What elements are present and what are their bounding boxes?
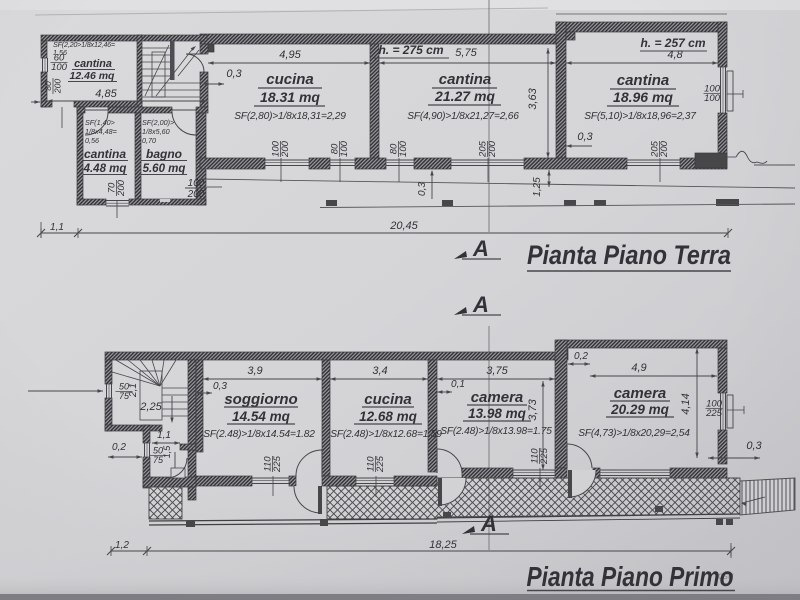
svg-text:0,3: 0,3 <box>226 68 242 80</box>
svg-text:A: A <box>472 292 489 317</box>
svg-text:14.54 mq: 14.54 mq <box>232 409 291 424</box>
svg-text:1,5: 1,5 <box>162 445 172 459</box>
svg-text:cantina: cantina <box>74 58 112 70</box>
svg-text:cantina: cantina <box>439 71 492 88</box>
svg-text:3,75: 3,75 <box>486 365 508 377</box>
svg-text:SF(2.48)>1/8x14.54=1.82: SF(2.48)>1/8x14.54=1.82 <box>203 429 315 440</box>
svg-text:20,45: 20,45 <box>389 220 418 232</box>
svg-text:1,25: 1,25 <box>532 177 543 197</box>
svg-text:100: 100 <box>339 140 350 157</box>
svg-text:200: 200 <box>280 140 291 158</box>
svg-text:0,3: 0,3 <box>577 131 593 143</box>
svg-text:SF(2,80)>1/8x18,31=2,29: SF(2,80)>1/8x18,31=2,29 <box>234 111 346 122</box>
svg-text:SF(4,73)>1/8x20,29=2,54: SF(4,73)>1/8x20,29=2,54 <box>578 428 690 439</box>
svg-text:18,25: 18,25 <box>429 539 457 551</box>
svg-text:0,3: 0,3 <box>417 182 428 196</box>
svg-text:18.96 mq: 18.96 mq <box>613 89 673 105</box>
svg-text:100: 100 <box>398 140 409 157</box>
svg-text:225: 225 <box>375 455 386 473</box>
svg-text:A: A <box>480 511 497 536</box>
svg-text:A: A <box>472 236 489 261</box>
svg-text:4,14: 4,14 <box>680 393 692 414</box>
svg-text:100: 100 <box>188 178 205 189</box>
svg-text:5,75: 5,75 <box>455 47 477 59</box>
svg-text:5.60 mq: 5.60 mq <box>143 163 186 175</box>
svg-text:SF(2,00)>: SF(2,00)> <box>142 118 174 127</box>
svg-text:SF(2.48)>1/8x13.98=1.75: SF(2.48)>1/8x13.98=1.75 <box>440 426 552 437</box>
svg-text:3,73: 3,73 <box>527 398 539 420</box>
svg-text:camera: camera <box>471 389 524 406</box>
svg-text:4,85: 4,85 <box>95 88 117 100</box>
svg-text:cucina: cucina <box>364 391 412 408</box>
svg-text:camera: camera <box>614 385 667 402</box>
svg-text:0,3: 0,3 <box>213 381 227 392</box>
svg-text:225: 225 <box>539 447 550 465</box>
svg-text:3,9: 3,9 <box>247 365 262 377</box>
svg-text:h. = 275 cm: h. = 275 cm <box>378 43 443 57</box>
svg-text:SF(5,10)>1/8x18,96=2,37: SF(5,10)>1/8x18,96=2,37 <box>584 111 696 122</box>
svg-text:cantina: cantina <box>617 72 670 89</box>
svg-text:Pianta Piano Terra: Pianta Piano Terra <box>527 240 731 270</box>
svg-text:1,1: 1,1 <box>50 222 64 233</box>
svg-text:21.27 mq: 21.27 mq <box>434 88 495 104</box>
svg-text:bagno: bagno <box>146 147 182 161</box>
svg-text:200: 200 <box>53 79 63 95</box>
svg-text:cucina: cucina <box>266 71 314 88</box>
svg-text:1,2: 1,2 <box>115 540 129 551</box>
svg-text:100: 100 <box>704 93 721 104</box>
svg-text:Pianta Piano Primo: Pianta Piano Primo <box>527 561 734 592</box>
svg-text:3,4: 3,4 <box>372 365 387 377</box>
svg-text:12.68 mq: 12.68 mq <box>359 409 418 424</box>
svg-text:SF(4,90)>1/8x21,27=2,66: SF(4,90)>1/8x21,27=2,66 <box>407 111 519 122</box>
svg-text:cantina: cantina <box>84 147 126 161</box>
svg-text:100: 100 <box>51 62 68 73</box>
svg-text:1,1: 1,1 <box>157 430 171 441</box>
svg-text:80: 80 <box>43 81 53 91</box>
svg-text:4.48 mq: 4.48 mq <box>83 163 127 175</box>
svg-text:0,56: 0,56 <box>85 136 99 145</box>
svg-text:4,9: 4,9 <box>631 362 646 374</box>
svg-text:0,70: 0,70 <box>142 136 156 145</box>
svg-text:0,2: 0,2 <box>574 351 588 362</box>
svg-text:225: 225 <box>705 408 723 419</box>
svg-text:200: 200 <box>187 189 205 200</box>
svg-text:200: 200 <box>659 140 670 158</box>
svg-text:18.31 mq: 18.31 mq <box>260 89 320 105</box>
svg-text:200: 200 <box>487 140 498 158</box>
svg-text:225: 225 <box>272 455 283 473</box>
svg-text:4,95: 4,95 <box>279 49 301 61</box>
svg-text:SF(1,40>: SF(1,40> <box>85 118 115 127</box>
svg-text:1/8x4,48=: 1/8x4,48= <box>85 127 117 136</box>
svg-text:12.46 mq: 12.46 mq <box>70 70 116 82</box>
svg-text:soggiorno: soggiorno <box>224 391 297 408</box>
svg-text:0,3: 0,3 <box>746 440 762 452</box>
svg-text:200: 200 <box>116 179 127 197</box>
svg-text:2,1: 2,1 <box>128 383 139 398</box>
svg-text:h. = 257 cm: h. = 257 cm <box>640 36 705 50</box>
svg-text:SF(2.48)>1/8x12.68=1.59: SF(2.48)>1/8x12.68=1.59 <box>330 429 442 440</box>
svg-text:4,8: 4,8 <box>667 49 683 61</box>
svg-text:0,1: 0,1 <box>451 379 465 390</box>
svg-text:3,63: 3,63 <box>527 87 539 109</box>
svg-text:0,2: 0,2 <box>112 442 126 453</box>
svg-text:13.98 mq: 13.98 mq <box>468 406 527 421</box>
svg-text:2,25: 2,25 <box>139 401 162 413</box>
svg-text:20.29 mq: 20.29 mq <box>610 402 670 417</box>
svg-text:1/8x5,60: 1/8x5,60 <box>142 127 170 136</box>
